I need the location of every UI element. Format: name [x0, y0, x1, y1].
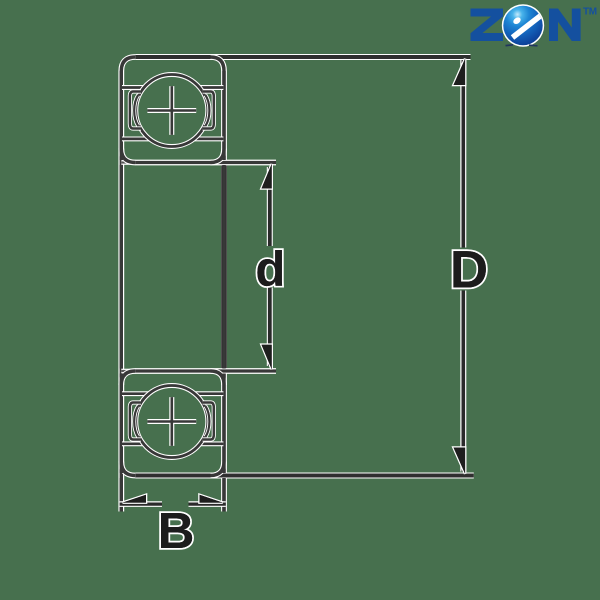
svg-text:B: B [158, 502, 195, 559]
svg-text:TM: TM [583, 6, 597, 17]
svg-text:D: D [450, 241, 488, 300]
svg-text:d: d [255, 243, 285, 297]
